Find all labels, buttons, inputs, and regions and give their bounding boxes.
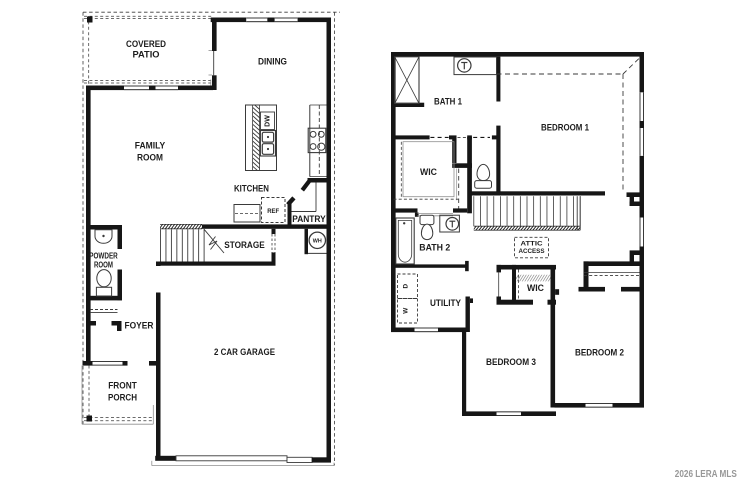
svg-text:FRONT: FRONT [108,380,137,391]
svg-text:2 CAR GARAGE: 2 CAR GARAGE [214,347,275,358]
svg-text:FAMILY: FAMILY [135,140,166,151]
svg-text:WIC: WIC [527,283,544,294]
svg-text:D: D [403,284,410,289]
svg-text:ATTIC: ATTIC [521,241,544,248]
svg-text:REF: REF [267,208,279,215]
svg-text:PORCH: PORCH [108,392,137,403]
svg-text:WH: WH [313,239,322,245]
svg-text:PATIO: PATIO [133,50,161,61]
svg-text:BATH 1: BATH 1 [434,96,463,107]
svg-text:DW: DW [265,115,272,127]
svg-text:W: W [403,307,410,314]
svg-text:POWDER: POWDER [89,251,118,260]
svg-text:KITCHEN: KITCHEN [234,183,269,194]
svg-text:COVERED: COVERED [126,39,166,50]
svg-text:ROOM: ROOM [137,152,163,163]
svg-text:WIC: WIC [420,167,437,178]
svg-text:BEDROOM 1: BEDROOM 1 [541,122,590,133]
svg-text:ACCESS: ACCESS [519,248,545,255]
svg-text:BEDROOM 3: BEDROOM 3 [486,357,536,368]
svg-text:STORAGE: STORAGE [224,240,265,250]
svg-text:PANTRY: PANTRY [292,214,326,224]
svg-text:DINING: DINING [258,56,287,67]
svg-text:BATH 2: BATH 2 [419,243,450,254]
svg-text:BEDROOM 2: BEDROOM 2 [575,347,624,358]
svg-text:UTILITY: UTILITY [430,298,462,309]
svg-text:ROOM: ROOM [94,260,113,269]
svg-text:2026 LERA MLS: 2026 LERA MLS [675,469,737,480]
svg-text:FOYER: FOYER [125,320,154,331]
